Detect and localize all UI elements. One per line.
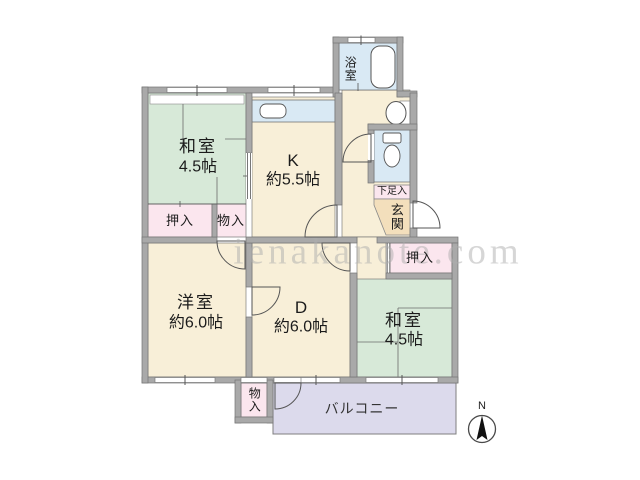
wall-segment — [246, 317, 252, 377]
room-label-washitsu-topleft: 和室 — [179, 138, 217, 156]
wall-segment — [246, 93, 252, 153]
room-size-dining: 約6.0帖 — [274, 320, 328, 337]
door-opening — [241, 378, 267, 383]
wall-segment — [350, 273, 357, 377]
window-ledge — [150, 95, 244, 104]
door-opening — [274, 378, 301, 383]
wall-segment — [368, 124, 417, 130]
balcony-label: バルコニー — [325, 402, 400, 417]
room-label-bath: 浴室 — [344, 56, 357, 82]
room-label-genkan: 玄関 — [389, 203, 403, 231]
wall-segment — [142, 87, 148, 383]
wall-segment — [142, 237, 217, 243]
floorplan: ienakanote.com 和室 4.5帖 K 約5.5帖 洋室 約6.0帖 … — [0, 0, 640, 480]
wall-segment — [397, 37, 403, 97]
room-label-washitsu-right: 和室 — [385, 312, 423, 330]
room-size-washitsu-right: 4.5帖 — [385, 333, 423, 350]
closet-label-oshiire-right: 押入 — [406, 251, 434, 265]
wall-segment — [333, 37, 339, 97]
closet-label-monoire-left: 物入 — [217, 214, 245, 228]
wall-segment — [335, 93, 342, 205]
room-label-kitchen: K — [287, 152, 298, 170]
toilet-tank — [383, 133, 401, 143]
washbasin — [386, 102, 406, 125]
closet-label-monoire-bottom: 物入 — [248, 387, 261, 413]
wall-segment — [235, 417, 273, 423]
wall-segment — [386, 273, 452, 279]
closet-label-oshiire-left: 押入 — [166, 214, 194, 228]
wall-segment — [235, 380, 241, 423]
wall-segment — [368, 160, 374, 183]
wall-segment — [410, 93, 417, 203]
room-size-western: 約6.0帖 — [169, 316, 223, 333]
room-size-kitchen: 約5.5帖 — [266, 173, 320, 190]
kitchen-sink — [260, 104, 286, 118]
compass — [469, 416, 496, 443]
room-label-western: 洋室 — [177, 294, 215, 312]
compass-north-label: N — [478, 401, 486, 413]
wall-segment — [267, 380, 273, 423]
bathtub — [371, 46, 395, 88]
room-size-washitsu-topleft: 4.5帖 — [179, 160, 217, 177]
closet-label-getabako: 下足入 — [377, 187, 407, 198]
room-label-dining: D — [295, 299, 307, 317]
toilet-bowl — [384, 145, 400, 167]
watermark: ienakanote.com — [233, 231, 522, 274]
